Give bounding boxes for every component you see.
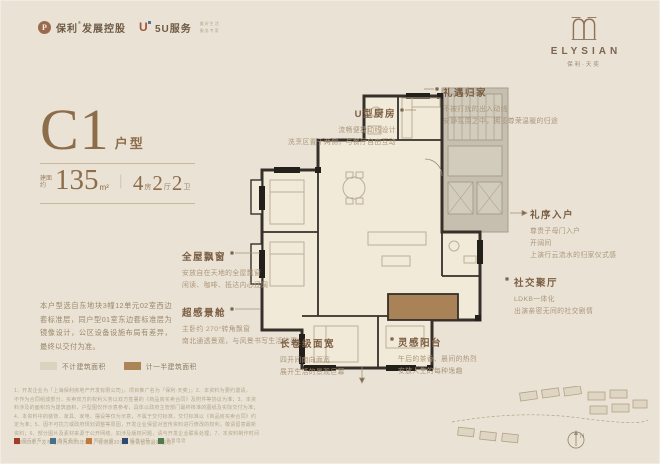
cert-icon <box>86 438 92 444</box>
annotation-title: 社交聚厅 <box>514 275 649 289</box>
spec-divider: ｜ <box>114 172 128 192</box>
cert-label: 网签公示 <box>94 438 114 444</box>
unit-code-suffix: 户型 <box>115 133 145 152</box>
site-boundary <box>452 415 648 423</box>
cert-label: 监督电话 <box>166 438 186 444</box>
disclaimer-line: 1、开发企业为「上海保利房地产开发有限公司」，项目推广名为「保利·天奕」；2、本… <box>14 387 334 396</box>
annotation-title: 灵感阳台 <box>398 335 518 349</box>
hall-count: 2 <box>152 174 163 193</box>
annotation-line: 上演行云流水的归家仪式感 <box>530 250 650 262</box>
cert-item: 备案查询 <box>50 438 78 444</box>
area-label: 建面约 <box>40 176 53 191</box>
legend-swatch-brown <box>124 362 141 370</box>
site-buildings <box>458 386 647 443</box>
5u-logo-icon: U <box>139 21 150 34</box>
legend-item: 不计建筑面积 <box>40 361 106 371</box>
cert-icon <box>14 438 20 444</box>
area-unit: m² <box>100 183 109 192</box>
unit-specs: 建面约 135 m² ｜ 4 房 2 厅 2 卫 <box>40 164 195 196</box>
service-note: 美好生活 服务专家 <box>200 21 220 34</box>
annotation-line: 开阔间 <box>530 238 650 250</box>
area-value: 135 <box>55 168 99 193</box>
annotation-title: U型厨房 <box>266 106 396 120</box>
cert-item: 监督电话 <box>158 438 186 444</box>
annotation-line: 出演亲密无间的社交剧情 <box>514 306 649 318</box>
annotation-line: 流畅便捷动线设计 <box>266 125 396 137</box>
service-brand-name: 5U服务 <box>155 20 192 35</box>
annotation-u-kitchen: U型厨房 流畅便捷动线设计 洗烹区置于两侧，与餐厅自由互动 <box>266 106 396 149</box>
annotation-title: 礼序入户 <box>530 207 650 221</box>
annotation-line: 安放人生的每种逸趣 <box>398 366 518 378</box>
north-compass-icon: N <box>568 430 584 448</box>
elysian-monogram-icon <box>569 14 599 42</box>
legend-label: 计一半建筑面积 <box>146 361 197 371</box>
brand-right: ELYSIAN 保利·天奕 <box>536 14 632 68</box>
cert-icon <box>122 438 128 444</box>
poster-page: P 保利®发展控股 U 5U服务 美好生活 服务专家 ELYSIAN 保利·天奕… <box>0 0 660 464</box>
annotation-line: LDKB一体化 <box>514 294 649 306</box>
poly-brand-name: 保利®发展控股 <box>56 20 126 35</box>
cert-icon <box>50 438 56 444</box>
annotation-line: 不被打扰的出入动线 <box>443 104 573 116</box>
legend-item: 计一半建筑面积 <box>124 361 197 371</box>
annotation-line: 安放自在天地的全屋飘窗 <box>182 268 302 280</box>
service-note-line: 美好生活 <box>200 21 220 27</box>
annotation-width: 长卷级面宽 四开间南向面宽 展开生活的景观巨幕 <box>280 336 390 379</box>
annotation-line: 主卧约 270°转角飘窗 <box>182 324 312 336</box>
unit-title-block: C1 户型 建面约 135 m² ｜ 4 房 2 厅 2 卫 <box>40 104 200 204</box>
annotation-line: 午后的茶香、晨间的热烈 <box>398 354 518 366</box>
disclaimer-line: 不作为合同组成部分，买卖双方的权利义务以双方签署的《商品房买卖合同》及附件等协议… <box>14 396 334 405</box>
annotation-line: 洗烹区置于两侧，与餐厅自由互动 <box>266 137 396 149</box>
divider-line <box>40 203 195 204</box>
disclaimer-line: 4、本资料中的装饰、家具、家电、摆设等仅为示意，不属于交付标准，交付标准以《商品… <box>14 413 334 422</box>
area-legend: 不计建筑面积 计一半建筑面积 <box>40 361 197 371</box>
annotation-line: 闲读、咖啡、抵达内心辽阔 <box>182 280 302 292</box>
cert-icon <box>158 438 164 444</box>
legend-swatch-light <box>40 362 57 370</box>
cert-item: 官方发布 <box>14 438 42 444</box>
unit-code: C1 <box>40 104 110 156</box>
poly-logo-icon: P <box>38 21 51 34</box>
project-name: ELYSIAN <box>536 46 632 57</box>
cert-label: 信息公开 <box>130 438 150 444</box>
cert-item: 信息公开 <box>122 438 150 444</box>
annotation-line: 展开生活的景观巨幕 <box>280 367 390 379</box>
annotation-line: 安静氛围之中，拥揽尊荣温暖的归途 <box>443 116 573 128</box>
unit-description: 本户型选自东地块3幢12单元02室西边套标准层，同户型01室东边套标准层为镜像设… <box>40 299 172 354</box>
cert-row: 官方发布 备案查询 网签公示 信息公开 监督电话 <box>14 438 186 444</box>
disclaimer-line: 料涉及的面积均为建筑面积，户型图仅作示意参考，具体以政府主管部门最终核准的图纸及… <box>14 404 334 413</box>
annotation-title: 礼遇归家 <box>443 85 573 99</box>
compass-label: N <box>580 434 584 440</box>
brand-left: P 保利®发展控股 U 5U服务 美好生活 服务专家 <box>38 20 220 35</box>
project-subname: 保利·天奕 <box>536 60 632 68</box>
annotation-title: 超感景舱 <box>182 305 312 319</box>
annotation-line: 尊贵子母门入户 <box>530 226 650 238</box>
cert-label: 官方发布 <box>22 438 42 444</box>
annotation-homecoming: 礼遇归家 不被打扰的出入动线 安静氛围之中，拥揽尊荣温暖的归途 <box>443 85 573 128</box>
annotation-entry: 礼序入户 尊贵子母门入户 开阔间 上演行云流水的归家仪式感 <box>530 207 650 262</box>
disclaimer-line: 定为准；5、因不可抗力或政府规划调整等原因，开发企业保留对宣传资料进行修改的权利… <box>14 421 334 430</box>
annotation-line: 四开间南向面宽 <box>280 355 390 367</box>
annotation-title: 全屋飘窗 <box>182 249 302 263</box>
service-note-line: 服务专家 <box>200 28 220 34</box>
legend-label: 不计建筑面积 <box>62 361 106 371</box>
annotation-title: 长卷级面宽 <box>280 336 390 350</box>
cert-item: 网签公示 <box>86 438 114 444</box>
annotation-social: 社交聚厅 LDKB一体化 出演亲密无间的社交剧情 <box>514 275 649 318</box>
room-count-unit: 房 <box>144 182 151 192</box>
hall-count-unit: 厅 <box>164 182 171 192</box>
annotation-bay-window: 全屋飘窗 安放自在天地的全屋飘窗 闲读、咖啡、抵达内心辽阔 <box>182 249 302 292</box>
bath-count-unit: 卫 <box>183 182 190 192</box>
cert-label: 备案查询 <box>58 438 78 444</box>
bath-count: 2 <box>172 174 183 193</box>
annotation-balcony: 灵感阳台 午后的茶香、晨间的热烈 安放人生的每种逸趣 <box>398 335 518 378</box>
site-plan: N <box>450 386 650 458</box>
room-count: 4 <box>133 174 144 193</box>
